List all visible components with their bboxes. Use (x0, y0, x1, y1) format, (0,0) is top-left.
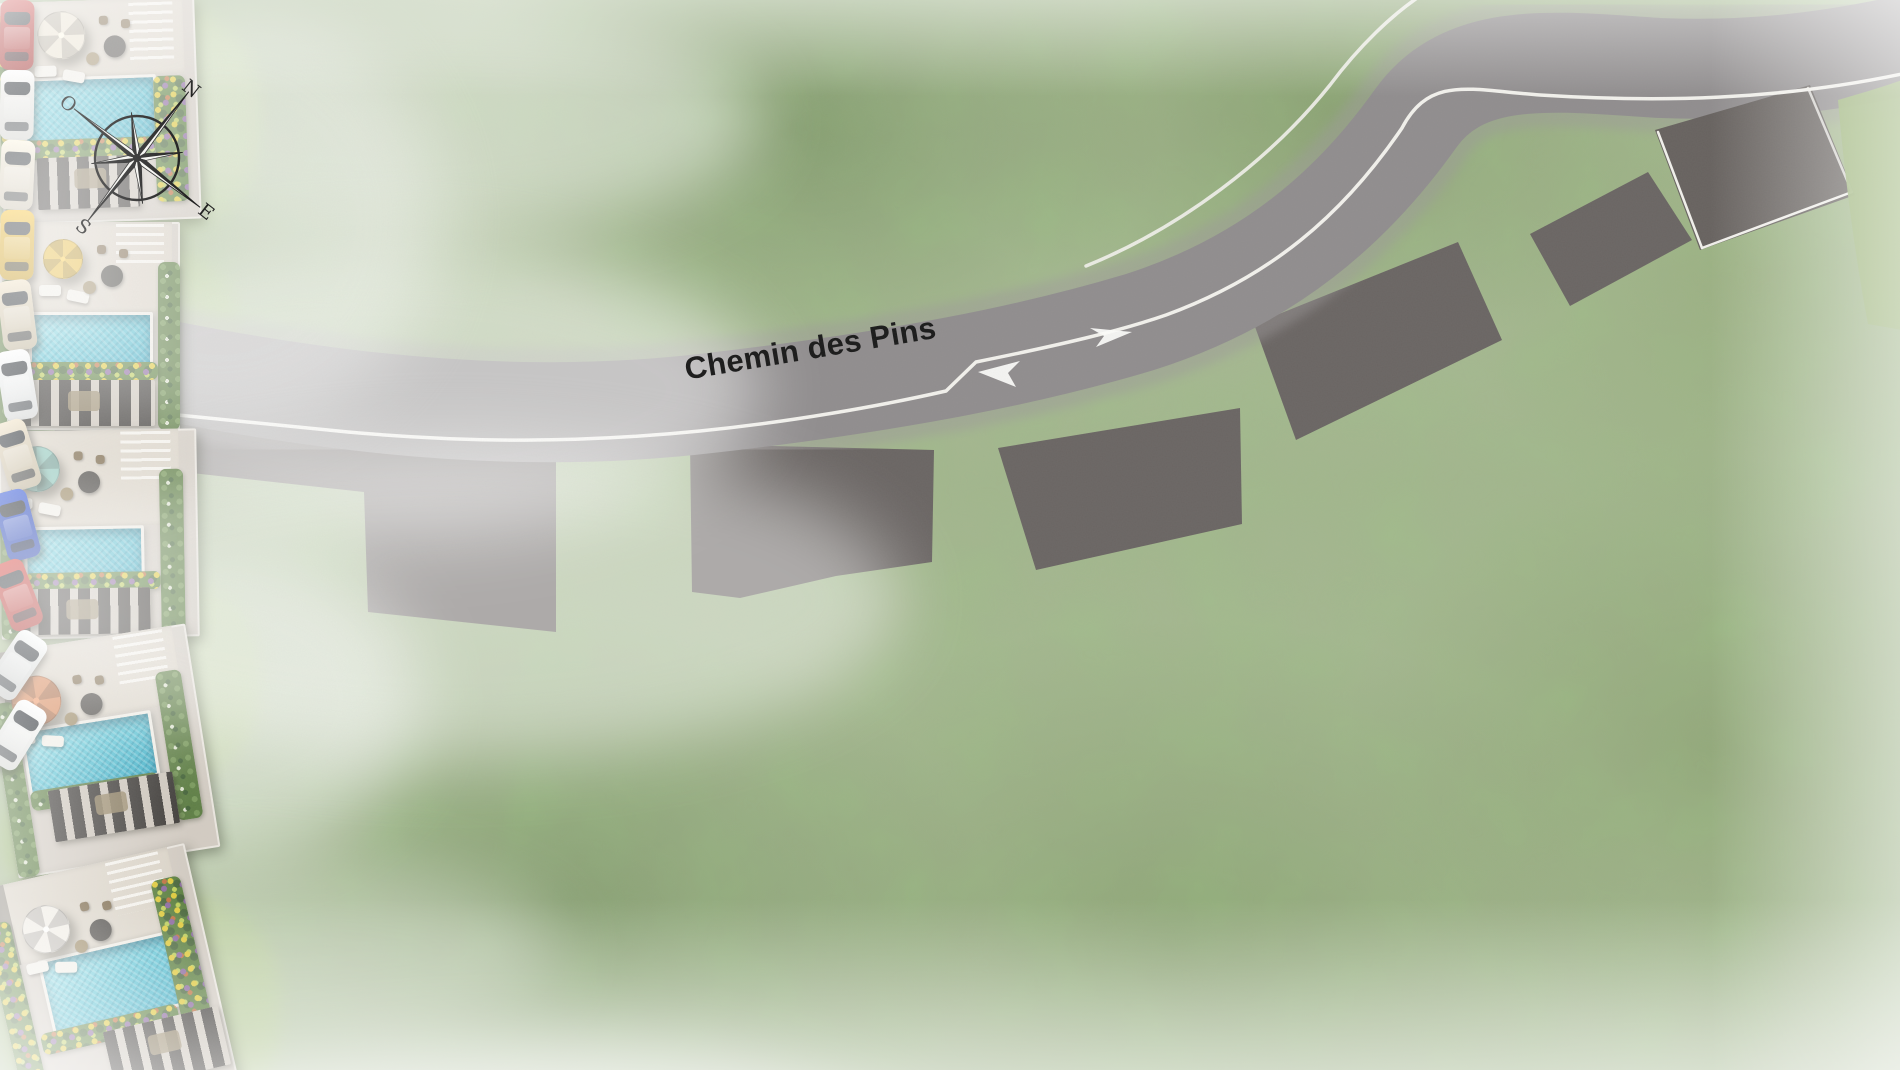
road-edge-line-top (1086, 0, 1420, 266)
swimming-pool (20, 710, 161, 796)
windshield (0, 499, 27, 518)
car-yellow (0, 210, 35, 281)
road-halo (0, 42, 1900, 412)
stairs (105, 851, 170, 916)
chair (99, 16, 108, 25)
pergola (48, 771, 181, 842)
sun-lounger (66, 289, 90, 304)
car-roof (2, 514, 33, 542)
sun-lounger (13, 732, 36, 746)
fog-vignette (0, 0, 1900, 1070)
windshield (11, 709, 40, 734)
windshield (5, 151, 32, 165)
villa-3 (0, 428, 200, 639)
tree (0, 770, 210, 980)
grass-strip (1838, 80, 1900, 330)
car-cream (0, 139, 36, 211)
fire-table (101, 265, 123, 287)
swimming-pool (24, 525, 145, 577)
fog-patch (0, 240, 760, 540)
stairs (112, 629, 170, 688)
car-white (0, 70, 35, 141)
rear-window (10, 538, 36, 553)
stairs (120, 431, 171, 480)
car-roof (3, 305, 31, 330)
windshield (0, 569, 26, 590)
rear-window (0, 672, 17, 693)
car-roof (0, 721, 32, 753)
fog-patch (0, 540, 420, 860)
driveway-villa-5 (1254, 242, 1502, 440)
lawn-patch (0, 890, 280, 1070)
car-beige (0, 417, 43, 494)
fog-patch (0, 1040, 1000, 1070)
rear-window (5, 122, 29, 131)
driveways (52, 172, 1692, 632)
fog-patch (0, 860, 560, 1040)
parasol-icon (13, 446, 60, 493)
terrace (0, 847, 185, 967)
road-edge-line-bottom (0, 70, 1900, 440)
car-roof (2, 444, 33, 473)
plot-platform (0, 843, 238, 1070)
hedge (0, 15, 27, 212)
cars-layer (0, 0, 1900, 1070)
rear-window (0, 743, 18, 763)
parasol-icon (8, 672, 65, 729)
grain-texture (0, 0, 1900, 1070)
swimming-pool (29, 312, 153, 366)
canopy-texture (0, 0, 1900, 1070)
fire-table (78, 471, 100, 493)
site-plan: Chemin des Pins (0, 0, 1900, 1070)
windshield (1, 291, 28, 307)
pergola (103, 1006, 231, 1070)
driveway-villa-3 (690, 444, 934, 598)
car-silver (0, 626, 51, 703)
chair (101, 900, 112, 911)
pergola (18, 587, 151, 635)
sun-lounger (10, 498, 32, 509)
sun-lounger (55, 962, 77, 973)
villa-5 (0, 843, 238, 1070)
hedge (25, 571, 161, 591)
rear-window (8, 400, 33, 413)
windshield (4, 222, 30, 235)
lane-arrow-icon (1090, 328, 1132, 347)
windshield (4, 82, 30, 95)
outdoor-table (147, 1029, 183, 1056)
tree (0, 340, 200, 540)
car-roof (3, 375, 32, 401)
rear-window (10, 468, 36, 484)
fog-top-layer (0, 0, 1900, 1070)
fire-table (103, 35, 126, 58)
fog-layer (0, 0, 1900, 1070)
hedge (158, 262, 180, 430)
hedge (40, 1003, 181, 1056)
hedge (0, 280, 20, 430)
car-beige (0, 278, 38, 352)
chair (74, 451, 83, 460)
windshield (0, 429, 27, 449)
car-roof (4, 27, 30, 49)
outdoor-table (83, 281, 96, 294)
car-roof (2, 583, 34, 613)
sun-lounger (38, 502, 62, 517)
windshield (12, 639, 41, 664)
guest-parking-line-bottom (1702, 192, 1852, 248)
parasol-icon (37, 10, 87, 60)
rear-window (5, 262, 29, 271)
road-edge-lines (0, 0, 1900, 440)
fog-patch (0, 440, 900, 760)
plot-platform (0, 623, 220, 878)
guest-parking-line-right (1808, 88, 1852, 192)
swimming-pool (37, 926, 206, 1035)
stairs (128, 1, 174, 64)
chair (121, 19, 130, 28)
car-roof (3, 166, 30, 189)
hedge (0, 701, 41, 878)
car-white (0, 348, 39, 422)
windshield (4, 12, 30, 25)
lane-arrow-icon (978, 361, 1020, 387)
outdoor-table (60, 487, 73, 500)
tree (0, 540, 230, 770)
parasol-icon (17, 901, 75, 959)
hedge (154, 669, 203, 821)
driveway-villa-4 (998, 408, 1242, 570)
chair (72, 674, 82, 684)
plot-platform (0, 428, 200, 639)
fire-table (88, 917, 114, 943)
road-label: Chemin des Pins (682, 310, 939, 387)
rear-window (5, 52, 29, 61)
driveway-villa-6 (1530, 172, 1692, 306)
hedge (150, 875, 215, 1038)
car-red (0, 0, 35, 70)
terrace (10, 429, 180, 528)
car-roof (4, 237, 30, 259)
outdoor-table (74, 939, 90, 955)
lane-arrows (978, 328, 1132, 387)
hedge (20, 362, 158, 380)
rear-window (12, 607, 38, 624)
forest-trees-layer (0, 0, 1900, 1070)
tree (0, 980, 240, 1070)
lawn-patch (0, 790, 140, 890)
hedge (159, 469, 186, 637)
hedge (0, 920, 55, 1070)
rear-window (7, 330, 32, 342)
pergola (19, 380, 155, 426)
car-blue (0, 487, 42, 563)
driveway-villa-1-2 (52, 382, 556, 632)
outdoor-table (68, 391, 100, 411)
outdoor-table (66, 599, 98, 620)
hedge (0, 491, 24, 639)
outdoor-table (94, 791, 129, 816)
compass-rose-icon (37, 58, 237, 258)
windshield (1, 360, 29, 377)
car-white (0, 696, 50, 773)
car-red (0, 556, 45, 634)
villa-4 (0, 623, 220, 878)
lawn-patch (0, 450, 180, 570)
fire-table (79, 691, 104, 716)
guest-parking-pad (1655, 85, 1855, 250)
chair (79, 901, 90, 912)
sun-lounger (42, 735, 65, 747)
car-roof (4, 97, 30, 119)
sun-lounger (39, 285, 61, 296)
rear-window (4, 191, 28, 201)
lawn-layer (0, 0, 1900, 1070)
chair (96, 455, 105, 464)
lawn-patch (0, 570, 260, 790)
sun-lounger (26, 960, 50, 976)
road-surface (0, 42, 1900, 412)
road (0, 0, 1900, 1070)
terrace (0, 626, 183, 731)
guest-parking-line-left (1658, 132, 1702, 248)
car-roof (0, 651, 32, 684)
lawn-patch (0, 240, 240, 450)
hedge (29, 772, 161, 812)
compass: N E S O (37, 58, 237, 258)
outdoor-table (64, 712, 79, 727)
villas-layer (0, 0, 1900, 1070)
chair (94, 675, 104, 685)
